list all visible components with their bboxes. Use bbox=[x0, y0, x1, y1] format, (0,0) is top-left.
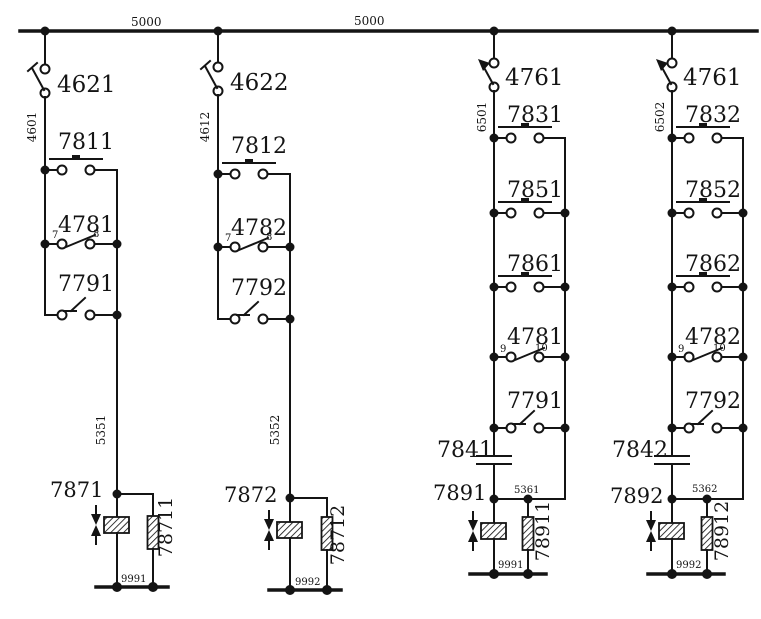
rung-label: 7812 bbox=[231, 134, 287, 159]
valve-icon bbox=[264, 511, 274, 549]
circuit-diagram: 5000 5000 4621 4601 7811 4781 7 8 7791 5… bbox=[0, 0, 761, 619]
terminal-number: 7 bbox=[52, 230, 58, 241]
top-bus: 5000 5000 bbox=[20, 14, 757, 36]
capacitor-label: 7841 bbox=[437, 438, 493, 463]
rung-label: 7792 bbox=[231, 276, 287, 301]
rung-label: 7791 bbox=[507, 389, 563, 414]
branch-2: 4622 4612 7812 4782 7 8 7792 5352 7872 7… bbox=[198, 31, 349, 595]
feed-wire-label: 6502 bbox=[653, 102, 667, 133]
coil-label: 7872 bbox=[224, 483, 277, 507]
disconnect-switch-icon bbox=[656, 59, 677, 92]
return-wire-label: 9991 bbox=[121, 574, 146, 585]
relay-contact-icon bbox=[494, 411, 565, 433]
relay-coil-icon bbox=[277, 522, 302, 538]
coil-label: 7892 bbox=[610, 484, 663, 508]
rung-label: 7791 bbox=[58, 272, 114, 297]
rung-label: 7861 bbox=[507, 252, 563, 277]
switch-label: 4622 bbox=[230, 70, 289, 96]
valve-icon bbox=[91, 506, 101, 544]
terminal-number: 9 bbox=[678, 344, 684, 355]
relay-contact-icon bbox=[672, 411, 743, 433]
pushbutton-contact-icon bbox=[45, 155, 116, 175]
switch-label: 4761 bbox=[505, 65, 564, 91]
rung-label: 7831 bbox=[507, 103, 563, 128]
resistor-label: 78712 bbox=[327, 505, 349, 565]
terminal-number: 7 bbox=[225, 233, 231, 244]
terminal-number: 10 bbox=[713, 343, 726, 354]
branch-4: 4761 6502 7832 7852 7862 4782 9 10 7792 … bbox=[610, 31, 748, 579]
disconnect-switch-icon bbox=[28, 63, 50, 98]
feed-wire-label: 6501 bbox=[475, 102, 489, 133]
rung-label: 7851 bbox=[507, 178, 563, 203]
relay-contact-icon bbox=[218, 302, 289, 324]
pushbutton-contact-icon bbox=[218, 159, 289, 179]
relay-contact-icon bbox=[45, 298, 116, 320]
valve-icon bbox=[646, 512, 656, 550]
drop-wire-label: 5352 bbox=[268, 415, 282, 446]
return-wire-label: 9992 bbox=[295, 577, 320, 588]
feed-wire-label: 4612 bbox=[198, 112, 212, 143]
rung-label: 7792 bbox=[685, 389, 741, 414]
branch-1: 4621 4601 7811 4781 7 8 7791 5351 7871 7… bbox=[25, 31, 177, 592]
resistor-label: 78911 bbox=[532, 501, 554, 561]
rung-label: 7811 bbox=[58, 130, 114, 155]
feed-wire-label: 4601 bbox=[25, 112, 39, 143]
switch-label: 4761 bbox=[683, 65, 742, 91]
terminal-number: 8 bbox=[93, 229, 99, 240]
terminal-number: 10 bbox=[535, 343, 548, 354]
coil-label: 7891 bbox=[433, 481, 486, 505]
drop-wire-label: 5361 bbox=[514, 485, 539, 496]
drop-wire-label: 5362 bbox=[692, 484, 717, 495]
rung-label: 4781 bbox=[58, 213, 114, 238]
rung-label: 7862 bbox=[685, 252, 741, 277]
rung-label: 7852 bbox=[685, 178, 741, 203]
relay-coil-icon bbox=[481, 523, 506, 539]
disconnect-switch-icon bbox=[478, 59, 499, 92]
bus-segment-label: 5000 bbox=[131, 15, 162, 29]
resistor-label: 78912 bbox=[711, 501, 733, 561]
drop-wire-label: 5351 bbox=[94, 415, 108, 446]
capacitor-label: 7842 bbox=[612, 438, 668, 463]
coil-label: 7871 bbox=[50, 478, 103, 502]
return-wire-label: 9992 bbox=[676, 560, 701, 571]
schematic-page: 5000 5000 4621 4601 7811 4781 7 8 7791 5… bbox=[0, 0, 761, 619]
terminal-number: 9 bbox=[500, 344, 506, 355]
disconnect-switch-icon bbox=[201, 61, 223, 96]
terminal-number: 8 bbox=[266, 232, 272, 243]
relay-coil-icon bbox=[659, 523, 684, 539]
valve-icon bbox=[468, 512, 478, 550]
rung-label: 7832 bbox=[685, 103, 741, 128]
resistor-label: 78711 bbox=[155, 497, 177, 557]
branch-3: 4761 6501 7831 7851 7861 4781 9 10 7791 … bbox=[433, 31, 570, 579]
rung-label: 4782 bbox=[231, 216, 287, 241]
relay-coil-icon bbox=[104, 517, 129, 533]
switch-label: 4621 bbox=[57, 72, 116, 98]
bus-segment-label: 5000 bbox=[354, 14, 385, 28]
return-wire-label: 9991 bbox=[498, 560, 523, 571]
